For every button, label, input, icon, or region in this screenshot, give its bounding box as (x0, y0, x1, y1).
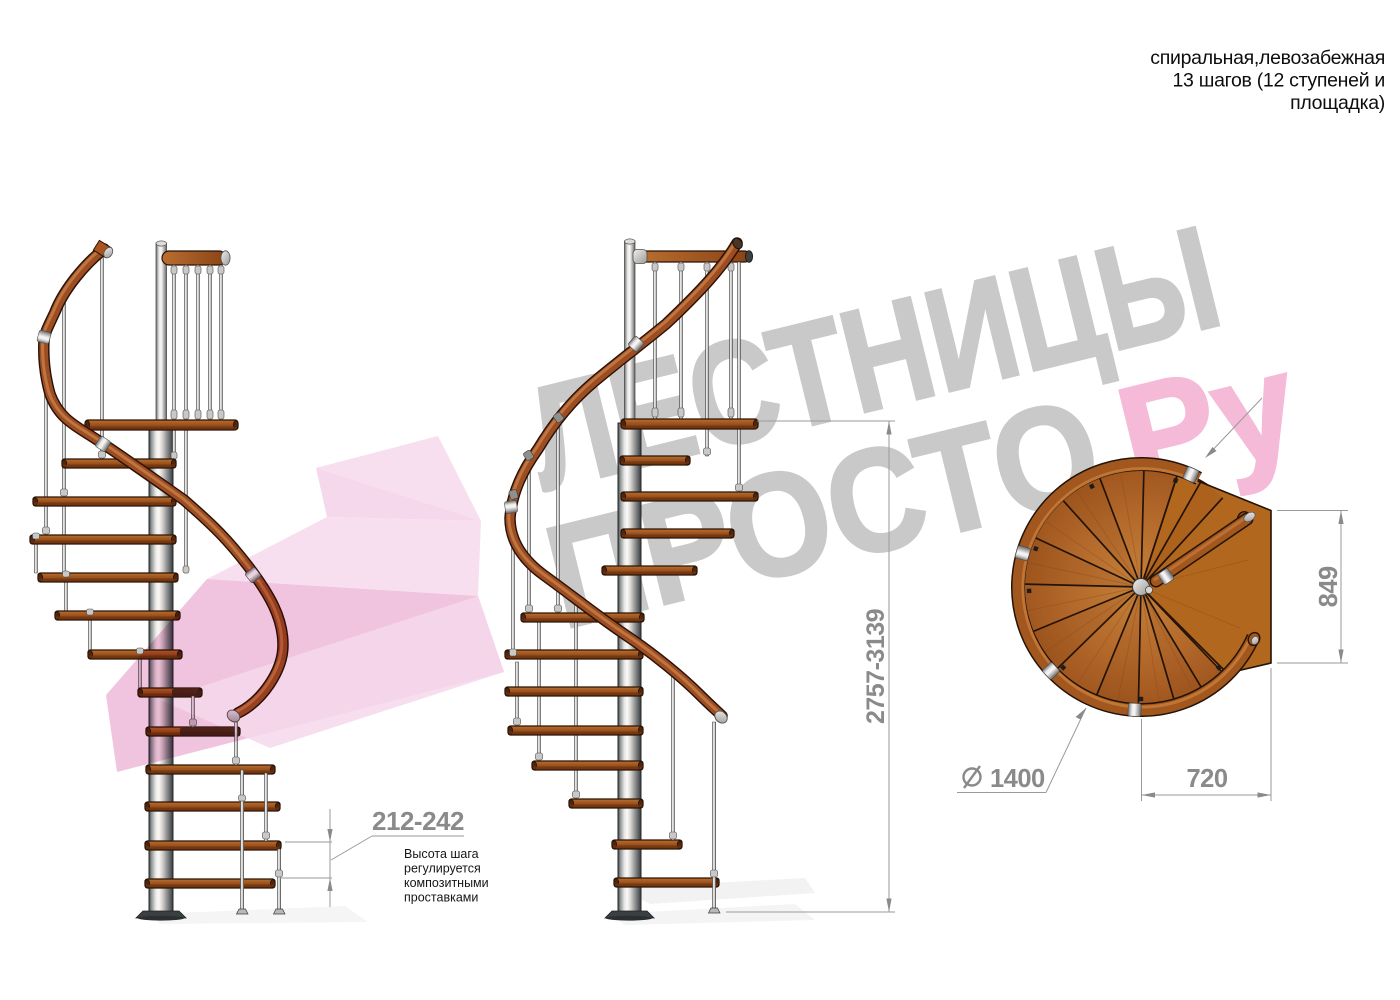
svg-text:регулируется: регулируется (404, 862, 481, 876)
svg-text:13 шагов (12 ступеней и: 13 шагов (12 ступеней и (1173, 70, 1385, 92)
svg-text:Высота шага: Высота шага (404, 847, 479, 861)
svg-text:спиральная,левозабежная: спиральная,левозабежная (1150, 47, 1385, 69)
svg-text:1400: 1400 (990, 765, 1045, 793)
svg-text:2757-3139: 2757-3139 (862, 609, 890, 724)
svg-text:212-242: 212-242 (372, 806, 464, 836)
svg-text:площадка): площадка) (1290, 92, 1385, 114)
svg-text:композитными: композитными (404, 876, 489, 890)
svg-text:720: 720 (1186, 765, 1227, 793)
svg-text:проставками: проставками (404, 891, 478, 905)
svg-text:849: 849 (1315, 566, 1343, 607)
